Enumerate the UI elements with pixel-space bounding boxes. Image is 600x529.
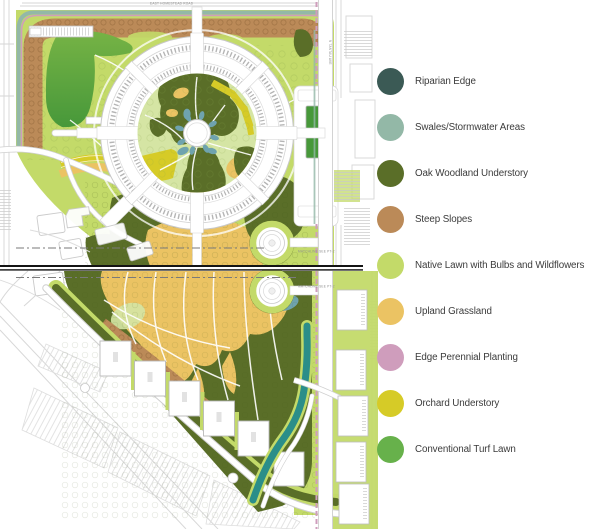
bottom-sheet-south-parcel: MATCHLINE SEE PT-2 bbox=[0, 269, 378, 529]
matchline bbox=[0, 265, 363, 271]
legend-item-edge-perennial: Edge Perennial Planting bbox=[377, 344, 600, 371]
legend-swatch-oak-woodland bbox=[377, 160, 404, 187]
site-plan-svg: EAST HOMESTEAD ROAD N TANTAU AVE MATCHLI… bbox=[0, 0, 378, 529]
legend-item-swales-stormwater: Swales/Stormwater Areas bbox=[377, 114, 600, 141]
matchline-label-top: MATCHLINE SEE PT-2 bbox=[298, 250, 335, 254]
context-driveway-rows bbox=[0, 190, 11, 232]
site-plan-map: EAST HOMESTEAD ROAD N TANTAU AVE MATCHLI… bbox=[0, 0, 378, 529]
legend-swatch-swales-stormwater bbox=[377, 114, 404, 141]
legend-label: Native Lawn with Bulbs and Wildflowers bbox=[415, 260, 584, 271]
legend-label: Swales/Stormwater Areas bbox=[415, 122, 525, 133]
round-basin-top bbox=[250, 221, 295, 266]
legend-item-steep-slopes: Steep Slopes bbox=[377, 206, 600, 233]
legend-item-orchard-understory: Orchard Understory bbox=[377, 390, 600, 417]
legend-item-turf-lawn: Conventional Turf Lawn bbox=[377, 436, 600, 463]
east-buildings bbox=[336, 290, 369, 524]
legend-swatch-native-lawn bbox=[377, 252, 404, 279]
context-driveway-rows bbox=[344, 206, 370, 246]
legend-swatch-riparian-edge bbox=[377, 68, 404, 95]
top-sheet-main-campus: EAST HOMESTEAD ROAD N TANTAU AVE MATCHLI… bbox=[0, 0, 375, 267]
round-basin-bottom bbox=[250, 269, 295, 314]
legend-label: Orchard Understory bbox=[415, 398, 499, 409]
legend-label: Edge Perennial Planting bbox=[415, 352, 518, 363]
legend-swatch-steep-slopes bbox=[377, 206, 404, 233]
legend-swatch-orchard-understory bbox=[377, 390, 404, 417]
road-label-tantau: N TANTAU AVE bbox=[328, 40, 332, 65]
legend-label: Upland Grassland bbox=[415, 306, 492, 317]
legend-label: Steep Slopes bbox=[415, 214, 472, 225]
road-label-homestead: EAST HOMESTEAD ROAD bbox=[150, 2, 194, 6]
matchline-label-bottom: MATCHLINE SEE PT-2 bbox=[298, 285, 335, 289]
legend-item-upland-grassland: Upland Grassland bbox=[377, 298, 600, 325]
legend-label: Riparian Edge bbox=[415, 76, 476, 87]
legend-swatch-upland-grassland bbox=[377, 298, 404, 325]
context-driveway-rows bbox=[344, 30, 372, 56]
legend-swatch-turf-lawn bbox=[377, 436, 404, 463]
legend-swatch-edge-perennial bbox=[377, 344, 404, 371]
planting-legend: Riparian Edge Swales/Stormwater Areas Oa… bbox=[377, 68, 600, 463]
legend-item-riparian-edge: Riparian Edge bbox=[377, 68, 600, 95]
legend-item-oak-woodland: Oak Woodland Understory bbox=[377, 160, 600, 187]
legend-label: Oak Woodland Understory bbox=[415, 168, 528, 179]
legend-label: Conventional Turf Lawn bbox=[415, 444, 516, 455]
planting-plan-page: EAST HOMESTEAD ROAD N TANTAU AVE MATCHLI… bbox=[0, 0, 600, 529]
legend-item-native-lawn: Native Lawn with Bulbs and Wildflowers bbox=[377, 252, 600, 279]
